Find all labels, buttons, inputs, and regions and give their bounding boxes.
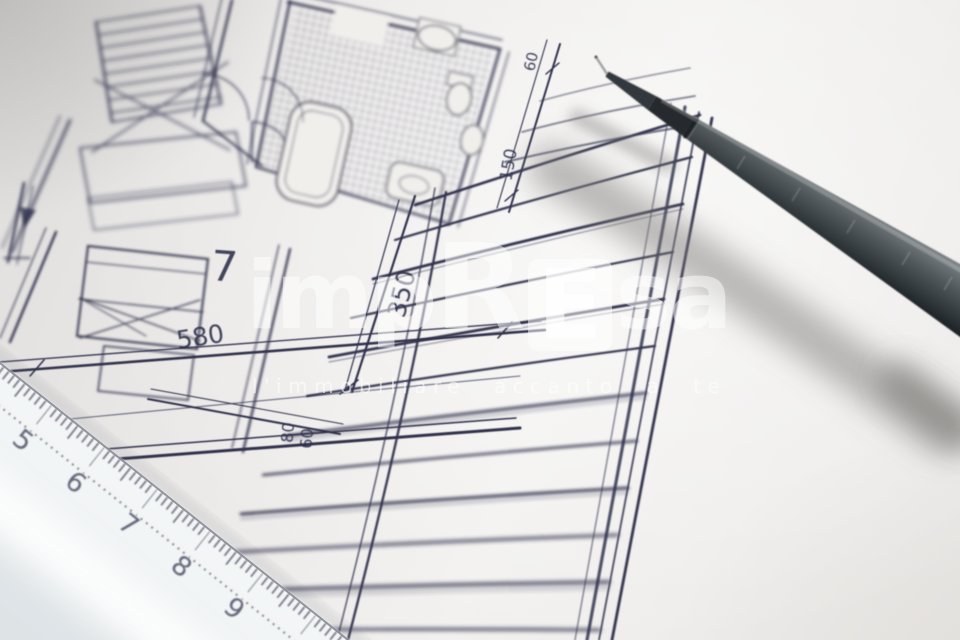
staircase	[2, 6, 246, 252]
pen-barrel	[688, 120, 960, 345]
terrace-decking-lower	[241, 393, 646, 519]
room-number: 7	[209, 241, 239, 292]
floor-plan-drawing: 7 580 350 150 60 80 60	[0, 0, 960, 640]
dimension-580: 580	[174, 319, 226, 355]
pen-tip	[596, 57, 607, 74]
bathroom	[247, 0, 509, 227]
architectural-plan-photo: 7 580 350 150 60 80 60	[0, 0, 960, 640]
pen-cone	[605, 72, 656, 110]
